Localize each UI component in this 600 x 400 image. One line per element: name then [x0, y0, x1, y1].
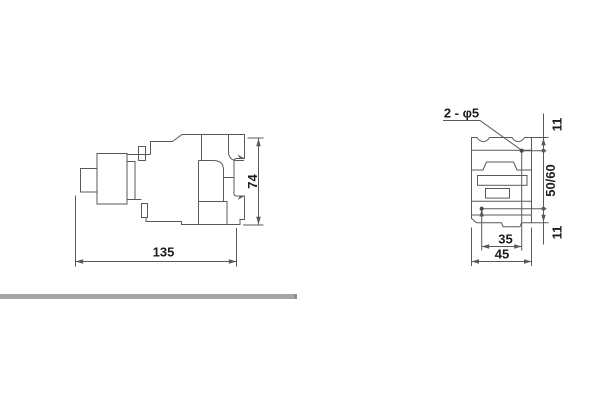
dim-11-bottom-label: 11	[550, 226, 565, 240]
dim-45-label: 45	[495, 247, 509, 262]
holes-label: 2 - φ5	[444, 106, 479, 121]
side-inner-corner	[229, 135, 245, 161]
right-arrow-top	[541, 138, 545, 145]
front-small-panel	[486, 189, 510, 199]
engineering-drawing: 74 135	[0, 0, 600, 400]
side-inner-bottom-lines	[199, 202, 228, 225]
dimension-135: 135	[76, 196, 237, 267]
dim-74-label: 74	[245, 174, 260, 189]
right-arrow-bottom	[541, 215, 545, 222]
right-dim-dot-top	[542, 149, 546, 153]
holes-callout: 2 - φ5	[443, 106, 520, 150]
dim-35-arrow-left	[482, 244, 490, 248]
dim-135-label: 135	[153, 245, 175, 260]
dim-50-60-label: 50/60	[543, 164, 558, 197]
divider-bar	[0, 294, 297, 299]
side-bottom-terminal	[142, 204, 148, 218]
din-clip-mark-top	[238, 155, 245, 159]
front-view: 2 - φ5 11 50/60 11 35	[443, 106, 565, 267]
dimension-right-stack: 11 50/60 11	[484, 114, 565, 245]
side-body-outline	[146, 135, 245, 225]
side-connector-lines	[127, 162, 142, 200]
side-view: 74 135	[76, 135, 264, 267]
front-ridge	[472, 162, 532, 170]
side-top-terminal	[139, 147, 146, 161]
dim-45-arrow-right	[524, 259, 532, 263]
din-clip-mark-bottom	[238, 196, 245, 200]
dim-135-arrow-left	[76, 259, 84, 264]
drawing-canvas: 74 135	[0, 0, 600, 400]
dim-74-arrow-bottom	[256, 217, 261, 225]
dimension-74: 74	[243, 138, 264, 225]
dim-35-arrow-right	[514, 244, 522, 248]
front-nameplate	[478, 176, 528, 186]
side-inner-box	[199, 161, 224, 202]
side-knob	[81, 169, 98, 193]
dim-74-arrow-top	[256, 139, 261, 147]
right-dim-dot-bottom	[542, 207, 546, 211]
side-front-block	[97, 154, 127, 205]
dim-11-top-label: 11	[550, 118, 565, 132]
holes-leader-line	[443, 121, 520, 150]
dim-35-label: 35	[498, 232, 512, 247]
hole-bottom-arrow	[480, 209, 484, 216]
dim-135-arrow-right	[229, 259, 237, 264]
dim-45-arrow-left	[472, 259, 480, 263]
